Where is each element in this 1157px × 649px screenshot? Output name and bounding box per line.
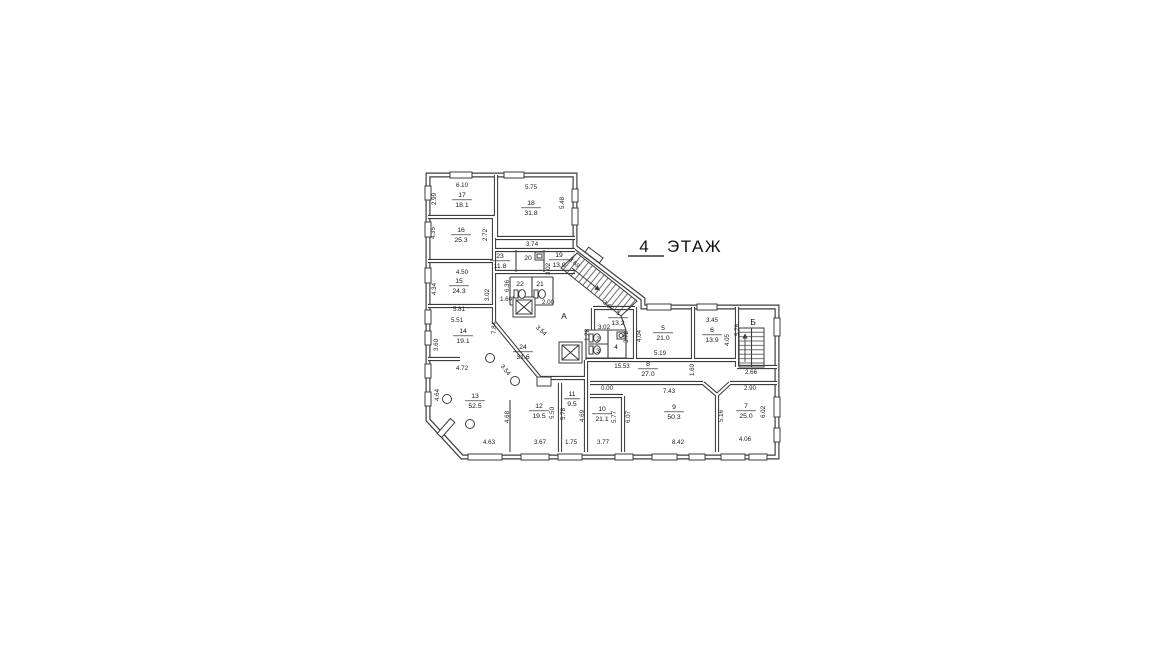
room-area-label: 19.5 <box>532 413 545 420</box>
dimension-label: 3.72 <box>623 330 630 343</box>
dimension-label: 7.43 <box>663 388 676 395</box>
room-area-label: 25.0 <box>739 413 752 420</box>
dimension-label: 4.72 <box>456 365 469 372</box>
dimension-label: 5.81 <box>453 306 466 313</box>
dimension-label: 4.06 <box>739 436 752 443</box>
room-number-label: 23 <box>496 253 504 260</box>
room-number-label: 18 <box>527 200 535 207</box>
dimension-label: 2.00 <box>542 299 555 306</box>
dimension-label: 5.51 <box>451 317 464 324</box>
room-number-label: 20 <box>524 255 532 262</box>
room-area-label: 21.1 <box>595 416 608 423</box>
dimension-label: 2.72 <box>482 228 489 241</box>
stairwell-label: А <box>561 311 567 321</box>
dimension-label: 5.19 <box>654 350 667 357</box>
dimension-label: 6.02 <box>760 405 767 418</box>
dimension-label: 2.99 <box>431 192 438 205</box>
floor-title-word: ЭТАЖ <box>667 237 722 256</box>
dimension-label: 6.36 <box>504 279 511 292</box>
toilet-icon <box>534 290 545 299</box>
room-number-label: 12 <box>535 403 543 410</box>
dimension-label: 6.10 <box>456 182 469 189</box>
dimension-label: 6.07 <box>625 410 632 423</box>
dimension-label: 3.77 <box>597 439 610 446</box>
room-number-label: 15 <box>455 278 463 285</box>
dimension-label: 3.54 <box>534 324 548 338</box>
dimension-label: 5.78 <box>560 407 567 420</box>
dimension-label: 5.48 <box>559 196 566 209</box>
dimension-label: 2.66 <box>745 369 758 376</box>
dimension-label: 3.45 <box>706 317 719 324</box>
room-number-label: 7 <box>744 403 748 410</box>
dimension-label: 5.76 <box>734 323 741 336</box>
room-number-label: 10 <box>598 406 606 413</box>
dimension-label: 4.04 <box>636 329 643 342</box>
dimension-label: 3.67 <box>534 439 547 446</box>
dimension-label: 3.02 <box>545 262 552 275</box>
dimension-label: 3.74 <box>526 241 539 248</box>
room-area-label: 19.1 <box>456 338 469 345</box>
room-number-label: 22 <box>516 281 524 288</box>
dimension-label: 5.75 <box>525 184 538 191</box>
room-number-label: 1 <box>616 310 620 317</box>
dimension-label: 1.60 <box>500 296 513 303</box>
floor-plan-page: 4 ЭТАЖ 1718.11831.81625.32311.8201913.02… <box>0 0 1157 649</box>
room-number-label: 21 <box>536 281 544 288</box>
dimension-label: 4.68 <box>504 410 511 423</box>
room-area-label: 31.8 <box>524 210 537 217</box>
dimension-label: 15.53 <box>614 363 630 370</box>
room-area-label: 24.3 <box>452 288 465 295</box>
dimension-label: 4.63 <box>483 439 496 446</box>
room-number-label: 11 <box>568 391 575 398</box>
room-area-label: 13.2 <box>611 320 624 327</box>
room-area-label: 31.6 <box>516 354 529 361</box>
room-area-label: 27.0 <box>641 371 654 378</box>
dimension-label: 4.35 <box>430 226 437 239</box>
dimension-label: 3.02 <box>598 324 611 331</box>
stairs-b <box>739 328 764 367</box>
room-area-label: 13.9 <box>705 337 718 344</box>
cabinet-icon <box>535 252 544 260</box>
dimension-label: 7.84 <box>491 321 498 334</box>
dimension-label: 4.34 <box>431 282 438 295</box>
dimension-label: 5.77 <box>611 410 618 423</box>
room-number-label: 4 <box>614 344 618 351</box>
dimension-label: 3.60 <box>433 338 440 351</box>
room-number-label: 16 <box>457 227 465 234</box>
room-area-label: 13.0 <box>552 262 565 269</box>
room-area-label: 18.1 <box>455 202 468 209</box>
dimension-label: 1.75 <box>565 439 578 446</box>
room-number-label: 6 <box>710 327 714 334</box>
room-number-label: 13 <box>471 393 479 400</box>
dimension-label: 0.00 <box>601 385 614 392</box>
room-number-label: 3 <box>596 348 600 355</box>
room-area-label: 25.3 <box>454 237 467 244</box>
dimension-label: 5.16 <box>718 409 725 422</box>
room-number-label: 5 <box>661 325 665 332</box>
dimension-label: 3.54 <box>499 363 512 377</box>
room-area-label: 9.5 <box>567 401 577 408</box>
room-area-label: 52.5 <box>468 403 481 410</box>
floor-plan-canvas: 4 ЭТАЖ 1718.11831.81625.32311.8201913.02… <box>0 0 1157 649</box>
dimension-label: 8.42 <box>672 439 685 446</box>
elevator-a <box>513 297 535 317</box>
room-number-label: 8 <box>646 361 650 368</box>
room-number-label: 2 <box>596 336 600 343</box>
stairwell-label: Б <box>750 317 756 327</box>
dimension-label: 5.50 <box>549 406 556 419</box>
dimension-label: 4.05 <box>724 333 731 346</box>
room-area-label: 21.0 <box>656 335 669 342</box>
elevator-b <box>559 342 582 363</box>
dimension-label: 4.50 <box>456 269 469 276</box>
room-number-label: 9 <box>672 404 676 411</box>
room-area-label: 50.3 <box>667 414 680 421</box>
dimension-label: 3.02 <box>484 288 491 301</box>
dimension-label: 4.69 <box>579 409 586 422</box>
toilet-icon <box>514 290 525 299</box>
entry-step <box>537 377 551 386</box>
room-number-label: 24 <box>519 344 527 351</box>
dimension-label: 1.28 <box>584 328 591 341</box>
room-number-label: 17 <box>458 192 466 199</box>
dimension-label: 4.64 <box>434 388 441 401</box>
dimension-label: 1.60 <box>689 363 696 376</box>
floor-title: 4 ЭТАЖ <box>628 237 722 256</box>
room-number-label: 14 <box>459 328 467 335</box>
dimension-label: 2.90 <box>744 385 757 392</box>
room-area-label: 11.8 <box>494 263 507 270</box>
floor-title-number: 4 <box>639 237 648 256</box>
room-number-label: 19 <box>555 252 563 259</box>
